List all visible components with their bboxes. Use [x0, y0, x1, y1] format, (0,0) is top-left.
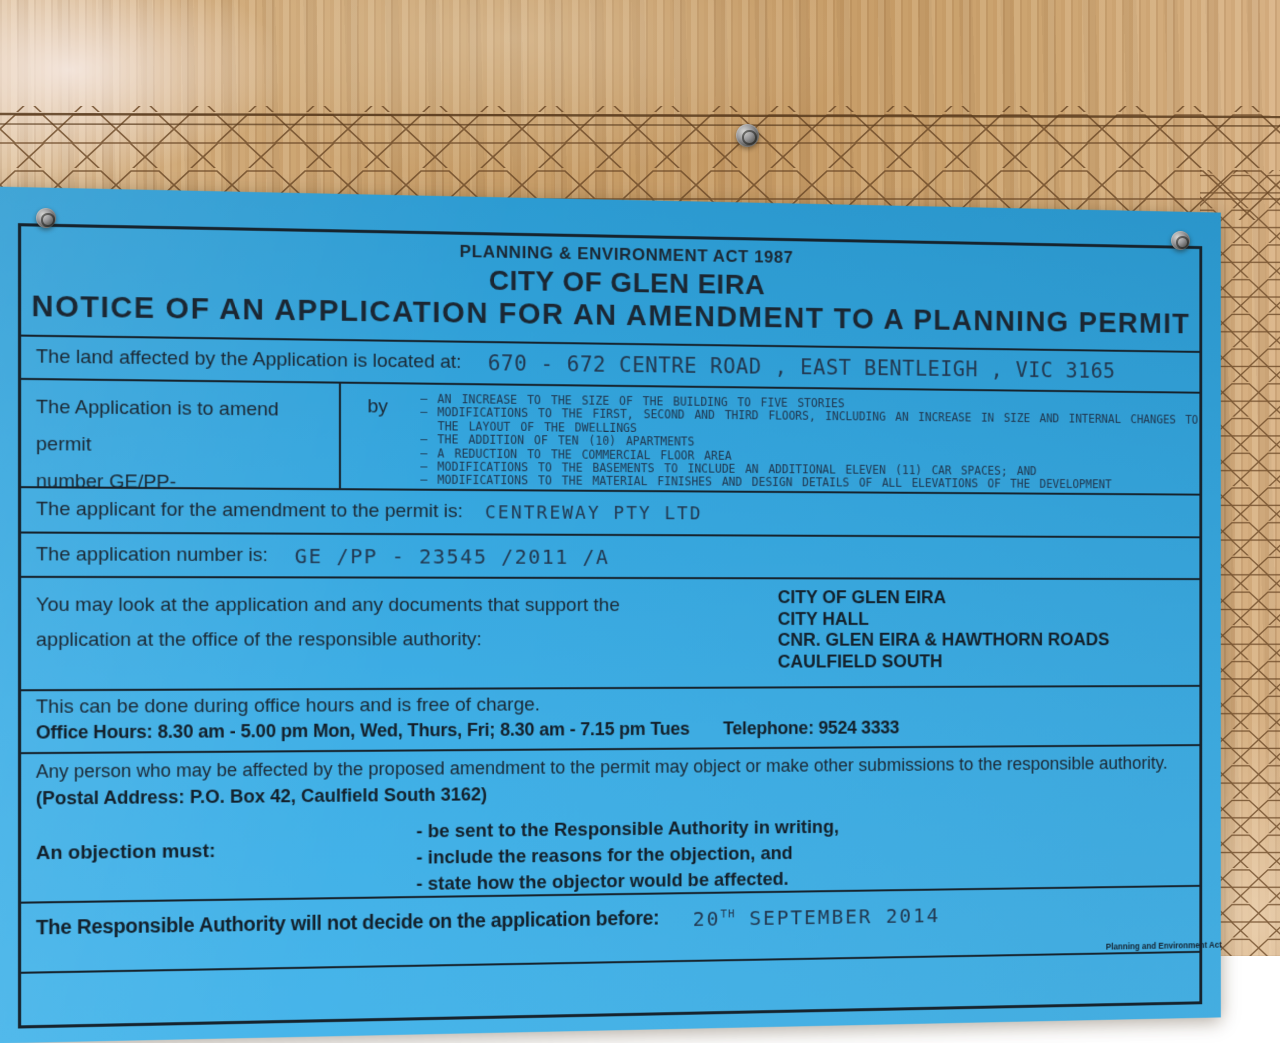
affected-persons-line: Any person who may be affected by the pr…	[36, 753, 1186, 783]
amendment-row: The Application is to amend permit numbe…	[21, 378, 1199, 494]
decision-date-label: The Responsible Authority will not decid…	[36, 908, 659, 941]
amendment-label-line1: The Application is to amend permit	[36, 389, 329, 465]
objection-must-items: be sent to the Responsible Authority in …	[416, 814, 839, 897]
address-line: CAULFIELD SOUTH	[778, 651, 1110, 673]
land-handwritten-value: 670 - 672 CENTRE ROAD , EAST BENTLEIGH ,…	[488, 351, 1116, 383]
office-hours-text: Office Hours: 8.30 am - 5.00 pm Mon, Wed…	[36, 719, 690, 744]
objection-must-label: An objection must:	[36, 841, 216, 866]
date-day: 20	[693, 907, 721, 931]
sign-border-box: PLANNING & ENVIRONMENT ACT 1987 CITY OF …	[18, 223, 1202, 1028]
land-label: The land affected by the Application is …	[36, 346, 462, 374]
amendment-items-list: AN INCREASE TO THE SIZE OF THE BUILDING …	[420, 393, 1199, 494]
sign-header: PLANNING & ENVIRONMENT ACT 1987 CITY OF …	[21, 226, 1199, 351]
amendment-label-cell: The Application is to amend permit numbe…	[21, 380, 341, 488]
date-ordinal: TH	[720, 908, 735, 921]
decision-date-row: The Responsible Authority will not decid…	[21, 885, 1199, 974]
telephone-number: Telephone: 9524 3333	[723, 718, 899, 740]
applicant-label: The applicant for the amendment to the p…	[36, 499, 463, 524]
application-number-label: The application number is:	[36, 543, 268, 566]
address-line: CITY OF GLEN EIRA	[778, 587, 1110, 608]
date-rest: SEPTEMBER 2014	[735, 903, 940, 930]
postal-address-line: (Postal Address: P.O. Box 42, Caulfield …	[36, 778, 1186, 810]
address-line: CITY HALL	[778, 609, 1110, 630]
planning-notice-sign: PLANNING & ENVIRONMENT ACT 1987 CITY OF …	[0, 187, 1221, 1043]
applicant-row: The applicant for the amendment to the p…	[21, 486, 1199, 536]
screw-top-center	[736, 124, 759, 147]
free-of-charge-line: This can be done during office hours and…	[36, 692, 1186, 719]
inspection-label: You may look at the application and any …	[36, 588, 664, 658]
application-number-handwritten-value: GE /PP - 23545 /2011 /A	[295, 543, 610, 568]
authority-address-block: CITY OF GLEN EIRA CITY HALL CNR. GLEN EI…	[778, 587, 1110, 672]
amendment-detail-cell: by AN INCREASE TO THE SIZE OF THE BUILDI…	[341, 384, 1199, 494]
by-label: by	[367, 396, 387, 488]
application-number-row: The application number is: GE /PP - 2354…	[21, 531, 1199, 578]
office-hours-row: This can be done during office hours and…	[21, 685, 1199, 752]
screw-top-left	[36, 208, 56, 228]
screw-top-right	[1171, 231, 1190, 250]
decision-date-handwritten-value: 20TH SEPTEMBER 2014	[693, 903, 940, 931]
office-hours-line: Office Hours: 8.30 am - 5.00 pm Mon, Wed…	[36, 716, 1186, 744]
objection-row: Any person who may be affected by the pr…	[21, 744, 1199, 902]
inspection-row: You may look at the application and any …	[21, 576, 1199, 689]
address-line: CNR. GLEN EIRA & HAWTHORN ROADS	[778, 630, 1110, 652]
applicant-handwritten-value: CENTREWAY PTY LTD	[485, 502, 702, 524]
